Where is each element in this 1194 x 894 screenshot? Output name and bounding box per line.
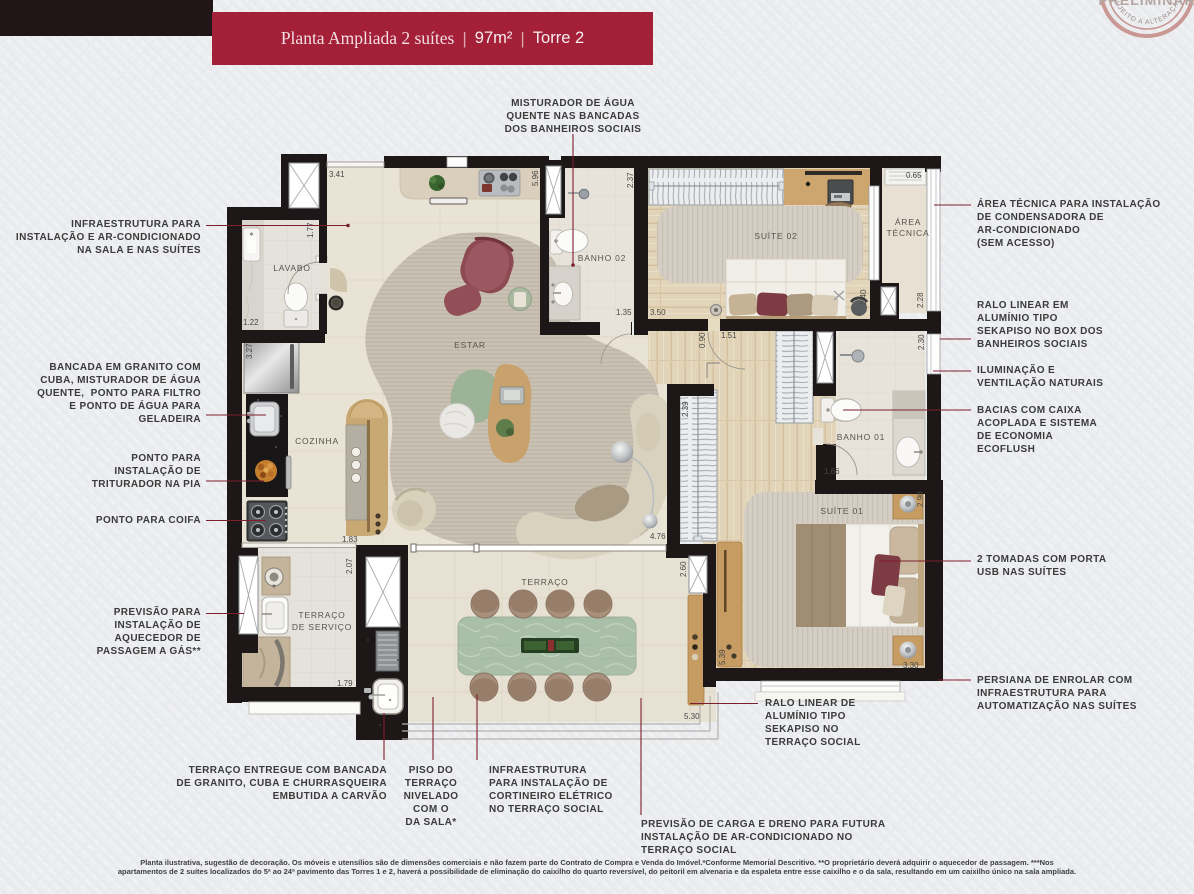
svg-text:2.40: 2.40 xyxy=(859,289,868,305)
svg-text:1.83: 1.83 xyxy=(342,535,358,544)
svg-text:1.66: 1.66 xyxy=(824,467,840,476)
svg-text:5.96: 5.96 xyxy=(531,170,540,186)
svg-text:SUÍTE 01: SUÍTE 01 xyxy=(820,506,863,516)
svg-text:ESTAR: ESTAR xyxy=(454,340,486,350)
svg-text:1.79: 1.79 xyxy=(337,679,353,688)
svg-text:0.90: 0.90 xyxy=(698,332,707,348)
svg-text:LAVABO: LAVABO xyxy=(273,263,311,273)
svg-text:0.65: 0.65 xyxy=(906,171,922,180)
svg-text:TÉCNICA: TÉCNICA xyxy=(887,228,930,238)
svg-text:ÁREA: ÁREA xyxy=(895,217,921,227)
svg-text:1.35: 1.35 xyxy=(616,308,632,317)
svg-text:3.27: 3.27 xyxy=(245,343,254,359)
svg-text:SUÍTE 02: SUÍTE 02 xyxy=(754,231,797,241)
svg-text:DE SERVIÇO: DE SERVIÇO xyxy=(292,622,352,632)
svg-text:1.22: 1.22 xyxy=(243,318,259,327)
svg-text:3.30: 3.30 xyxy=(903,661,919,670)
svg-text:2.37: 2.37 xyxy=(626,172,635,188)
svg-text:2.28: 2.28 xyxy=(916,292,925,308)
svg-text:BANHO 02: BANHO 02 xyxy=(578,253,626,263)
svg-text:TERRAÇO: TERRAÇO xyxy=(521,577,568,587)
svg-text:4.76: 4.76 xyxy=(650,532,666,541)
svg-text:2.30: 2.30 xyxy=(917,334,926,350)
svg-text:TERRAÇO: TERRAÇO xyxy=(298,610,345,620)
svg-text:2.60: 2.60 xyxy=(679,561,688,577)
svg-text:5.39: 5.39 xyxy=(718,649,727,665)
svg-text:1.51: 1.51 xyxy=(721,331,737,340)
svg-text:BANHO 01: BANHO 01 xyxy=(837,432,885,442)
svg-text:3.41: 3.41 xyxy=(329,170,345,179)
svg-text:1.77: 1.77 xyxy=(306,222,315,238)
svg-text:COZINHA: COZINHA xyxy=(295,436,339,446)
svg-text:5.30: 5.30 xyxy=(684,712,700,721)
svg-text:2.90: 2.90 xyxy=(916,491,925,507)
svg-text:2.07: 2.07 xyxy=(345,558,354,574)
svg-text:2.39: 2.39 xyxy=(681,401,690,417)
